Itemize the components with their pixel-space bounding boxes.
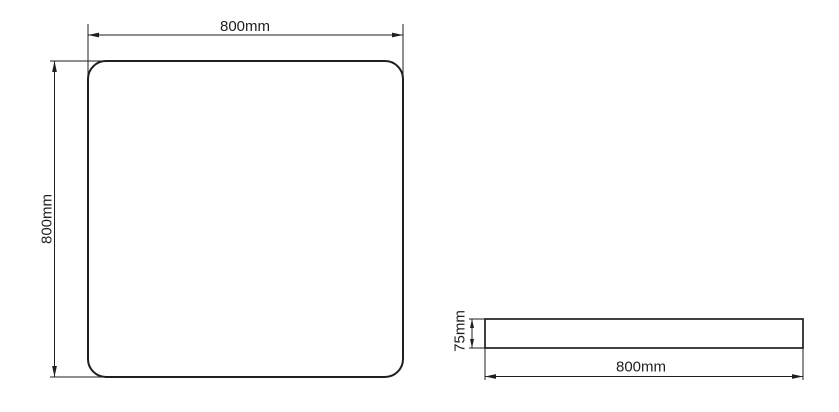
front-height-dimension: 800mm <box>39 61 108 377</box>
arrowhead-right <box>392 33 403 38</box>
arrowhead-left <box>88 33 99 38</box>
side-height-dimension: 75mm <box>452 310 487 352</box>
front-width-label: 800mm <box>220 18 270 35</box>
side-width-dimension: 800mm <box>485 348 803 380</box>
side-height-label: 75mm <box>452 310 469 352</box>
front-view: 800mm 800mm <box>39 18 404 377</box>
side-view-outline <box>485 319 803 348</box>
arrowhead-top <box>470 319 474 328</box>
dimension-drawing: 800mm 800mm 75mm <box>0 0 839 412</box>
side-view: 75mm 800mm <box>452 310 804 380</box>
arrowhead-left <box>485 374 496 379</box>
front-height-label: 800mm <box>39 194 56 244</box>
front-view-outline <box>88 61 403 377</box>
arrowhead-bottom <box>52 366 57 377</box>
arrowhead-bottom <box>470 339 474 348</box>
arrowhead-right <box>792 374 803 379</box>
front-width-dimension: 800mm <box>88 18 403 80</box>
side-width-label: 800mm <box>616 359 666 376</box>
technical-drawing-canvas: 800mm 800mm 75mm <box>0 0 839 412</box>
arrowhead-top <box>52 61 57 72</box>
